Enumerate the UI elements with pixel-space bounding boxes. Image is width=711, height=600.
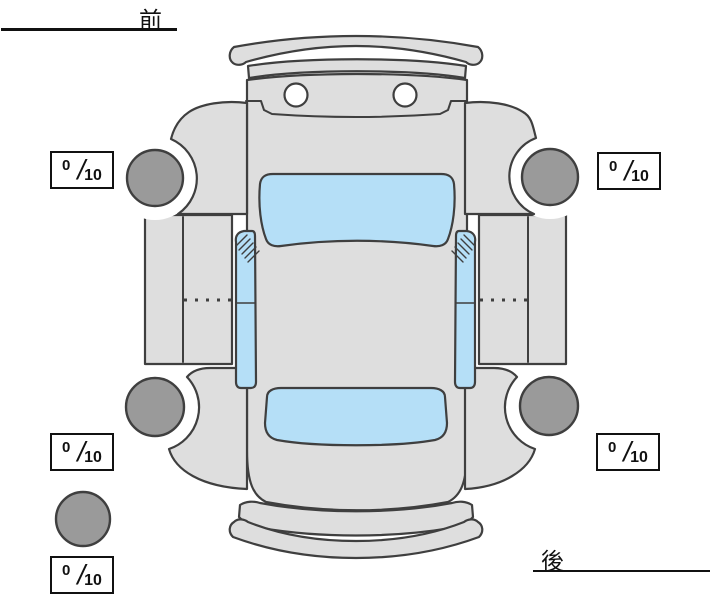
rating-max: 10 xyxy=(631,168,649,186)
right-door-panel xyxy=(479,215,566,364)
car-top-view-svg xyxy=(0,0,711,600)
rating-max: 10 xyxy=(84,572,102,590)
rear-left-wheel-icon xyxy=(126,378,184,436)
rear-window-glass xyxy=(265,388,447,445)
vehicle-condition-diagram: 前 後 0 / 10 0 / 10 0 / 10 0 / 10 0 / 10 xyxy=(0,0,711,600)
rating-value: 0 xyxy=(62,157,70,174)
rating-box-spare: 0 / 10 xyxy=(50,556,114,594)
rating-max: 10 xyxy=(84,167,102,185)
rating-max: 10 xyxy=(84,449,102,467)
rating-box-rear-left: 0 / 10 xyxy=(50,433,114,471)
rating-max: 10 xyxy=(630,449,648,467)
rating-value: 0 xyxy=(62,562,70,579)
rating-box-front-left: 0 / 10 xyxy=(50,151,114,189)
rear-right-wheel-icon xyxy=(520,377,578,435)
rear-right-fender xyxy=(465,368,535,489)
right-side-windows xyxy=(455,231,475,388)
front-right-wheel-icon xyxy=(522,149,578,205)
rear-left-fender xyxy=(169,368,247,489)
front-left-wheel-icon xyxy=(127,150,183,206)
rating-value: 0 xyxy=(609,158,617,175)
spare-wheel-icon xyxy=(56,492,110,546)
left-side-windows xyxy=(236,231,256,388)
windshield-glass xyxy=(259,174,454,246)
rear-underline xyxy=(533,570,710,572)
left-door-panel xyxy=(145,215,232,364)
rating-box-rear-right: 0 / 10 xyxy=(596,433,660,471)
front-underline xyxy=(1,28,177,31)
rating-box-front-right: 0 / 10 xyxy=(597,152,661,190)
rating-value: 0 xyxy=(62,439,70,456)
headlight-right-icon xyxy=(394,84,417,107)
headlight-left-icon xyxy=(285,84,308,107)
rating-value: 0 xyxy=(608,439,616,456)
